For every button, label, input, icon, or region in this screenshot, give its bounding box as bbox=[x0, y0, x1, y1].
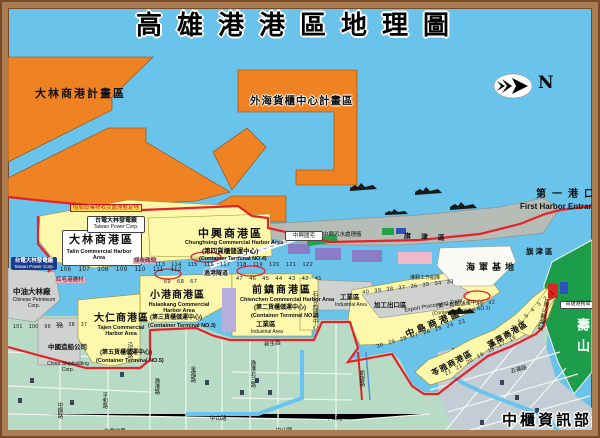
street-yukang: 漁港路 bbox=[153, 378, 159, 395]
street-pinghe: 平和路 bbox=[101, 392, 107, 409]
industrial2-label-zh: 工業區 bbox=[340, 294, 360, 301]
hsiaokang-label-zh: 小港商港區 bbox=[150, 290, 205, 302]
north-label: N bbox=[538, 74, 554, 94]
chunghsing-label-en: Chunghsing Commercial Harbor Area bbox=[185, 240, 283, 246]
chienchen-label-zh: 前鎮商港區 bbox=[252, 285, 312, 297]
hsiaokang-label-en: Hsiaokang Commercial Harbor Area bbox=[148, 302, 210, 315]
epz-label-zh: 加工出口區 bbox=[374, 302, 407, 309]
street-yukang-n3: 漁港北三路 bbox=[249, 360, 255, 388]
industrial1-label-en: Industrial Area bbox=[251, 330, 283, 336]
csbc-label-en: China Shipbuilding Corp. bbox=[44, 362, 92, 374]
coal-wharf-label: 煤炭碼頭 bbox=[133, 258, 157, 264]
taipower2-label-en: Taiwan Power Corp. bbox=[11, 264, 57, 269]
tunnel-label: 過港隧道 bbox=[204, 271, 228, 278]
cpc-label-zh: 中油大林廠 bbox=[13, 288, 51, 297]
chunghsing-label-zh: 中興商港區 bbox=[198, 228, 263, 241]
navy-base-label: 海軍基地 bbox=[466, 262, 518, 272]
entrance-label-zh: 第一港口 bbox=[536, 189, 592, 201]
street-chinfu: 金福路 bbox=[189, 366, 195, 383]
petrochem-label: 石化品儲轉中心 bbox=[311, 291, 317, 337]
hungmaokang-label: 紅毛港遷村 bbox=[55, 277, 85, 283]
tajen-label-en: Tajen Commercial Harbor Area bbox=[92, 325, 150, 338]
taipower2-box: 台電大林發電廠 Taiwan Power Corp. bbox=[11, 257, 57, 270]
kaohsiung-harbor-map: 高雄港港區地理圖 中櫃資訊部繪製 N 大林商港計畫區 外海貨櫃中心計畫區 第一港… bbox=[8, 8, 592, 430]
csbc-label-zh: 中國造船公司 bbox=[48, 344, 87, 351]
chijin-label-2: 旗津區 bbox=[526, 248, 555, 257]
street-chungshan-3: 中山路 bbox=[326, 416, 343, 422]
map-frame: 高雄港港區地理圖 中櫃資訊部繪製 N 大林商港計畫區 外海貨櫃中心計畫區 第一港… bbox=[0, 0, 600, 438]
sewage-plant-label: 中興污水處理廠 bbox=[323, 232, 362, 238]
talin-label-en: Talin Commercial Harbor Area bbox=[65, 249, 133, 262]
chunghsing-housing-label: 中興國宅 bbox=[285, 231, 323, 241]
street-chungshan-2: 中山路 bbox=[276, 428, 293, 430]
planned-area-shapes bbox=[8, 57, 357, 222]
street-chungkang: 中鋼路 bbox=[56, 402, 62, 419]
shoushan-label: 壽山 bbox=[574, 318, 589, 360]
chienchen-sub-zh: (第二貨櫃儲運中心) bbox=[254, 305, 306, 312]
hsiaokang-sub-zh: (第三貨櫃儲運中心) bbox=[150, 315, 202, 322]
ship-waste-label: 船舶廢棄物收受處理暫定地 bbox=[70, 204, 142, 212]
chienchen-sub-en: (Container Terminal NO.2) bbox=[251, 313, 319, 319]
industrial2-label-en: Industrial Area bbox=[335, 303, 367, 309]
taipower-label-en: Taiwan Power Corp. bbox=[90, 225, 142, 231]
street-yenhai: 沿海路 bbox=[126, 342, 132, 359]
taipower-box: 台電大林發電廠 Taiwan Power Corp. bbox=[87, 216, 145, 233]
harbor-bureau-label: 高雄港務局 bbox=[560, 301, 592, 309]
planned-area-dalin-label: 大林商港計畫區 bbox=[35, 88, 126, 101]
tajen-label-zh: 大仁商港區 bbox=[94, 313, 149, 325]
industrial1-label-zh: 工業區 bbox=[256, 321, 276, 328]
berths-chienchen: 47 46 45 44 43 42 41 bbox=[236, 276, 322, 282]
chienchen-label-en: Chienchen Commercial Harbor Area bbox=[240, 297, 334, 303]
map-title: 高雄港港區地理圖 bbox=[8, 12, 592, 42]
north-arrow-icon bbox=[494, 74, 532, 98]
street-kaihsuan: 凱旋路 bbox=[358, 370, 364, 387]
berths-tajen: 39 38 37 bbox=[56, 323, 87, 329]
cpc-label-en: Chinese Petroleum Corp. bbox=[12, 298, 56, 310]
entrance-label-en: First Harbor Entrance bbox=[520, 202, 592, 211]
berths-hsiaokang: 69 68 67 bbox=[164, 279, 197, 285]
talin-label-zh: 大林商港區 bbox=[69, 234, 134, 247]
street-tayeh-n: 大業北路 bbox=[104, 429, 126, 430]
hsiaokang-sub-en: (Container Terminal NO.3) bbox=[148, 323, 216, 329]
street-chungshan-1: 中山路 bbox=[210, 416, 227, 422]
chunghsing-sub-zh: (第四貨櫃儲運中心) bbox=[202, 248, 258, 255]
credit-text: 中櫃資訊部繪製 bbox=[502, 412, 592, 429]
berths-chunghsing: 113 114 115 116 117 118 119 120 121 122 bbox=[155, 262, 313, 268]
planned-area-offshore-label: 外海貨櫃中心計畫區 bbox=[250, 95, 354, 107]
